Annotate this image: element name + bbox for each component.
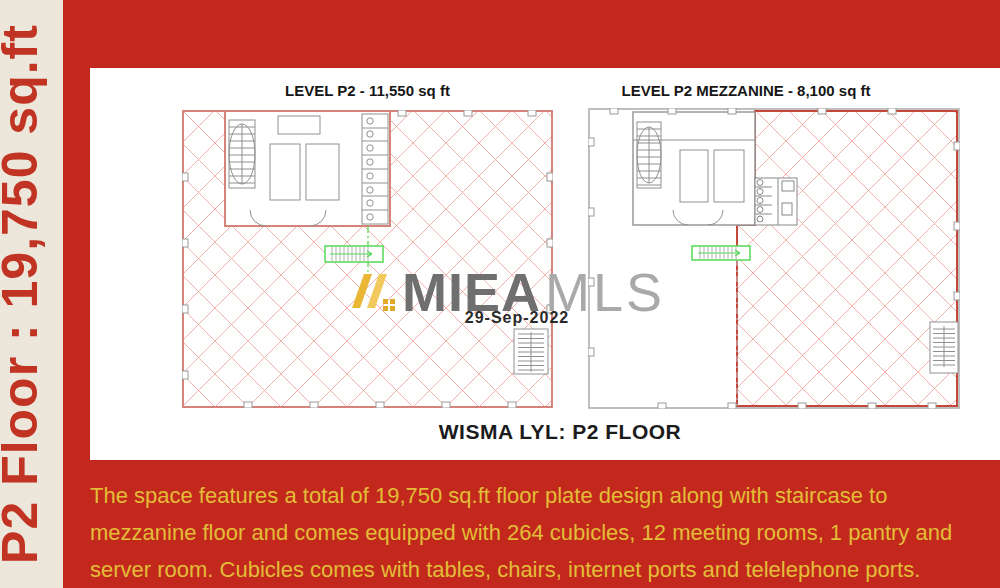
corner-staircase — [514, 329, 548, 374]
description-paragraph: The space features a total of 19,750 sq.… — [90, 477, 1000, 588]
crosshatch-area — [737, 111, 957, 406]
watermark-brand-light: MLS — [545, 270, 665, 314]
floor-plan-p2-drawing — [182, 110, 553, 408]
watermark-date: 29-Sep-2022 — [427, 309, 607, 327]
corner-staircase — [930, 322, 958, 373]
left-sidebar-strip: P2 Floor : 19,750 sq.ft — [0, 0, 63, 588]
core-area — [225, 111, 390, 226]
description-line: server room. Cubicles comes with tables,… — [90, 551, 1000, 588]
plan-title-mezzanine: LEVEL P2 MEZZANINE - 8,100 sq ft — [560, 82, 932, 102]
vertical-floor-label: P2 Floor : 19,750 sq.ft — [0, 24, 49, 564]
description-line: The space features a total of 19,750 sq.… — [90, 477, 1000, 514]
description-line: mezzanine floor and comes equipped with … — [90, 514, 1000, 551]
plan-title-p2: LEVEL P2 - 11,550 sq ft — [182, 82, 553, 102]
floor-plan-panel: LEVEL P2 - 11,550 sq ft LEVEL P2 MEZZANI… — [90, 68, 1000, 460]
toilet-block — [755, 178, 797, 225]
watermark-brand-bold: MIEA — [402, 270, 541, 314]
plan-caption: WISMA LYL: P2 FLOOR — [90, 420, 1000, 444]
core-area — [633, 112, 755, 225]
miea-logo-icon — [350, 270, 398, 314]
floor-plan-mezzanine-drawing — [588, 108, 960, 409]
